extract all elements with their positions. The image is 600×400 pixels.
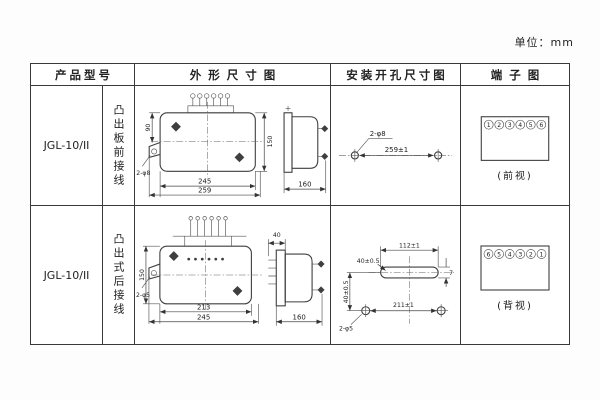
- row1-depth-dim: 160: [298, 181, 311, 189]
- row1-wiring-type: 凸出板前接线: [103, 86, 135, 206]
- row2-v-offset-dim: 40±0.5: [343, 280, 350, 303]
- row2-v-offset-leader-dim: 40±0.5: [357, 258, 380, 265]
- row2-view-label: (背视): [497, 299, 533, 312]
- terminal-number: 4: [518, 122, 522, 129]
- header-install-holes: 安装开孔尺寸图: [331, 64, 461, 86]
- row2-height-dim: 150: [139, 269, 146, 281]
- terminal-number: 5: [529, 122, 533, 129]
- row2-hole-size-label: 2-φ5: [339, 326, 353, 333]
- row2-terminal-cell: 6 5 4 3 2 1 (背视): [461, 206, 569, 344]
- row1-view-label: (前视): [497, 169, 532, 182]
- row1-install-drawing: 259±1 2-φ8: [331, 86, 460, 205]
- row1-terminal-drawing: 1 2 3 4 5 6 (前视): [461, 86, 569, 205]
- unit-note: 单位：mm: [515, 34, 574, 50]
- row2-install-cell: 112±1 40±0.5 40±0.5 7 211±1: [331, 206, 461, 344]
- terminal-number: 2: [497, 122, 501, 129]
- row1-inner-width-dim: 245: [198, 178, 211, 186]
- row2-wiring-type: 凸出式后接线: [103, 206, 135, 344]
- terminal-number: 1: [540, 251, 544, 258]
- stud-icon: [318, 261, 325, 268]
- row1-hole-span-dim: 259±1: [385, 146, 408, 154]
- screw-cover-icon: [235, 152, 245, 162]
- terminal-numbers: 1 2 3 4 5 6: [484, 120, 545, 129]
- row1-install-cell: 259±1 2-φ8: [331, 86, 461, 206]
- terminal-number: 5: [497, 251, 501, 258]
- row1-wiring-label: 凸出板前接线: [113, 104, 124, 188]
- ear-hole-icon: [152, 149, 157, 154]
- row1-left-height-dim: 90: [145, 124, 152, 132]
- row2-side-body: [285, 254, 312, 302]
- terminal-number: 3: [518, 251, 522, 258]
- row2-terminal-drawing: 6 5 4 3 2 1 (背视): [461, 206, 569, 344]
- row1-outer-width-dim: 259: [198, 187, 211, 195]
- row1-hole-size-label: 2-φ8: [370, 130, 386, 138]
- terminal-number: 6: [487, 251, 491, 258]
- screw-cover-icon: [233, 286, 243, 296]
- row2-outline-cell: 150 213 245 2-φ5 40: [135, 206, 331, 344]
- mounting-ear: [149, 264, 160, 279]
- stud-icon: [321, 125, 328, 132]
- screw-cover-icon: [171, 122, 181, 132]
- row2-ear-hole-label: 2-φ5: [136, 292, 150, 299]
- row1-terminal-screws-icon: [188, 94, 234, 113]
- row2-side-flange: [276, 250, 285, 306]
- terminal-number: 3: [508, 122, 512, 129]
- spec-table: 产品型号 外形尺寸图 安装开孔尺寸图 端子图 JGL-10/II 凸出板前接线: [30, 63, 570, 345]
- header-product-model: 产品型号: [31, 64, 135, 86]
- row2-hole-span-dim: 211±1: [393, 302, 414, 309]
- row2-wiring-label: 凸出式后接线: [113, 233, 124, 317]
- spec-sheet-page: 单位：mm 产品型号 外形尺寸图 安装开孔尺寸图 端子图 JGL-10/II 凸…: [0, 0, 600, 400]
- row2-outline-drawing: 150 213 245 2-φ5 40: [135, 206, 330, 344]
- screw-cover-icon: [169, 251, 179, 261]
- row1-ear-hole-label: 2-φ8: [136, 170, 150, 177]
- terminal-numbers: 6 5 4 3 2 1: [484, 250, 546, 259]
- row2-slot-height-dim: 7: [449, 270, 453, 277]
- row2-depth-dim: 160: [293, 313, 306, 321]
- header-outline-dims: 外形尺寸图: [135, 64, 331, 86]
- row1-side-flange: [284, 113, 292, 172]
- row2-install-drawing: 112±1 40±0.5 40±0.5 7 211±1: [331, 206, 460, 344]
- stud-icon: [318, 286, 325, 293]
- terminal-number: 1: [487, 122, 491, 129]
- terminal-number: 4: [508, 251, 512, 258]
- row2-side-top-dim: 40: [273, 232, 281, 239]
- row2-outer-width-dim: 245: [197, 313, 210, 321]
- header-terminal-diagram: 端子图: [461, 64, 569, 86]
- stud-icon: [321, 153, 328, 160]
- row2-model: JGL-10/II: [31, 206, 103, 344]
- row2-inner-width-dim: 213: [197, 303, 210, 311]
- terminal-number: 6: [539, 122, 543, 129]
- row1-outline-drawing: 90 150 245 259 2-φ8: [135, 86, 330, 205]
- terminal-number: 2: [529, 251, 533, 258]
- row2-slot-span-dim: 112±1: [399, 243, 420, 250]
- row1-terminal-cell: 1 2 3 4 5 6 (前视): [461, 86, 569, 206]
- row1-height-dim: 150: [267, 136, 274, 148]
- row1-model: JGL-10/II: [31, 86, 103, 206]
- row1-side-body: [292, 117, 318, 169]
- row1-outline-cell: 90 150 245 259 2-φ8: [135, 86, 331, 206]
- mounting-ear: [149, 143, 160, 158]
- row2-terminal-pins-icon: [173, 217, 247, 247]
